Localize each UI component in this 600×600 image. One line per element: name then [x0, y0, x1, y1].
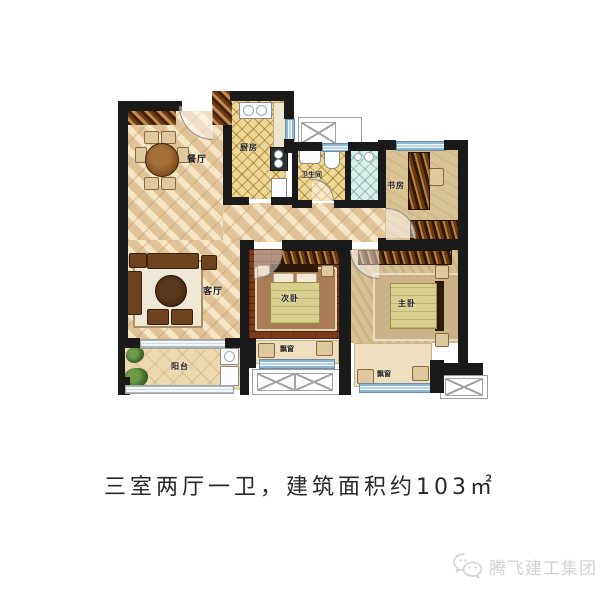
wall — [348, 142, 380, 151]
study-desk — [408, 152, 430, 210]
shower-fixture — [364, 152, 374, 162]
bay-cushion — [412, 366, 429, 381]
sofa — [147, 253, 199, 269]
flue-xbox — [301, 122, 336, 144]
nightstand — [435, 265, 449, 279]
sink-basin — [256, 105, 267, 116]
wall — [223, 197, 249, 205]
nightstand — [435, 333, 449, 347]
window-bay-second — [259, 359, 335, 369]
label-dining: 餐厅 — [187, 152, 207, 165]
wall — [378, 150, 386, 208]
wardrobe-second — [281, 250, 340, 265]
shower-fixture — [354, 153, 362, 161]
wall — [230, 91, 290, 101]
bay-cushion — [316, 341, 333, 356]
dining-chair — [161, 177, 176, 190]
window-balcony — [125, 385, 234, 394]
watermark: 腾飞建工集团 — [452, 552, 597, 580]
page: { "caption": "三室两厅一卫，建筑面积约103㎡", "waterm… — [0, 0, 600, 600]
sink-basin — [243, 105, 254, 116]
bay-cushion — [357, 369, 374, 384]
sofa — [127, 271, 142, 315]
ac-xbox — [257, 373, 295, 391]
armchair — [201, 255, 217, 270]
burner — [274, 150, 283, 159]
nightstand — [321, 265, 334, 277]
washing-machine — [220, 366, 239, 386]
wall — [334, 200, 382, 208]
floor-plan: 餐厅 厨房 卫生间 书房 客厅 次卧 主卧 阳台 飘窗 飘窗 — [115, 85, 485, 405]
study-chair — [429, 168, 444, 186]
sofa-seat — [171, 309, 193, 325]
wall — [292, 200, 312, 208]
wall — [118, 101, 182, 111]
wall — [458, 140, 468, 363]
fridge — [271, 178, 287, 199]
wall — [225, 338, 249, 348]
wall — [240, 240, 249, 342]
wall — [433, 363, 483, 375]
label-study: 书房 — [387, 180, 405, 191]
wall — [345, 151, 351, 200]
caption: 三室两厅一卫，建筑面积约103㎡ — [0, 469, 600, 501]
ac-xbox — [445, 378, 483, 396]
window-balcony-slider — [140, 339, 227, 349]
label-bay-window-master: 飘窗 — [377, 369, 391, 379]
label-bathroom: 卫生间 — [301, 170, 322, 180]
floor-hallway — [223, 203, 386, 242]
wall — [292, 151, 298, 200]
dining-chair — [144, 131, 159, 144]
wall — [292, 142, 322, 151]
label-living: 客厅 — [203, 284, 223, 297]
wall — [223, 125, 232, 205]
wall — [378, 240, 468, 250]
wall — [284, 91, 294, 119]
wall — [118, 101, 128, 345]
label-bedroom-second: 次卧 — [281, 293, 299, 304]
wall — [247, 338, 256, 368]
bay-cushion — [258, 343, 275, 358]
wall-hatch — [212, 91, 232, 125]
label-kitchen: 厨房 — [240, 142, 258, 153]
window-kitchen — [285, 119, 295, 141]
armchair — [129, 253, 147, 268]
wall — [339, 248, 351, 395]
label-bay-window-second: 飘窗 — [280, 344, 294, 354]
window-bay-master — [359, 383, 431, 393]
wall-hatch — [128, 111, 176, 125]
study-wardrobe — [410, 220, 460, 240]
burner — [274, 159, 283, 168]
basin-bowl — [224, 351, 235, 362]
wall — [271, 197, 294, 205]
ac-xbox — [295, 373, 333, 391]
dining-table — [145, 143, 179, 177]
label-bedroom-master: 主卧 — [398, 298, 416, 309]
sofa-seat — [147, 309, 169, 325]
dining-chair — [144, 177, 159, 190]
watermark-text: 腾飞建工集团 — [489, 554, 597, 579]
coffee-table — [155, 275, 187, 307]
wall — [378, 140, 396, 150]
wechat-icon — [452, 552, 484, 580]
label-balcony: 阳台 — [171, 361, 189, 372]
window-study — [396, 141, 446, 151]
